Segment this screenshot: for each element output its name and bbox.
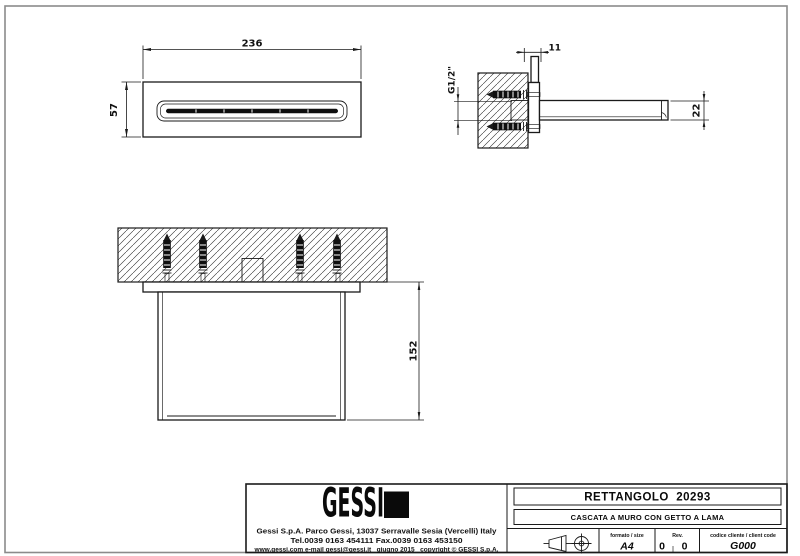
- dim-57-label: 57: [109, 103, 120, 117]
- wall-section-hatched: [118, 228, 387, 282]
- side-view: 11 G1/2" 22: [448, 44, 710, 149]
- dimension-projection-152: 152: [347, 282, 424, 420]
- revision-value-right: 0: [682, 541, 688, 553]
- dim-236-label: 236: [242, 39, 263, 50]
- bottom-view: 152: [118, 228, 424, 420]
- format-label: formato / size: [610, 533, 644, 539]
- product-description: CASCATA A MURO CON GETTO A LAMA: [571, 513, 725, 522]
- front-view: 236 57: [109, 39, 361, 138]
- company-cell: GESSI Gessi S.p.A. Parco Gessi, 13037 Se…: [253, 481, 498, 554]
- title-block: GESSI Gessi S.p.A. Parco Gessi, 13037 Se…: [246, 481, 787, 554]
- dim-g12-label: G1/2": [448, 66, 458, 94]
- dim-152-label: 152: [409, 341, 420, 362]
- company-address: Gessi S.p.A. Parco Gessi, 13037 Serraval…: [257, 529, 497, 536]
- gessi-logo-text: GESSI: [322, 481, 384, 527]
- wall-flange: [529, 83, 540, 133]
- dimension-width-236: 236: [143, 39, 361, 80]
- wall-flange: [143, 282, 360, 292]
- gessi-logo: GESSI: [322, 481, 409, 527]
- client-code-label: codice cliente / client code: [710, 533, 776, 539]
- product-name: RETTANGOLO 20293: [584, 492, 711, 504]
- spout-body: [158, 292, 345, 420]
- format-value: A4: [619, 541, 634, 553]
- revision-value-left: 0: [659, 541, 665, 553]
- client-code-value: G000: [730, 540, 756, 552]
- dimension-spout-height-22: 22: [671, 91, 710, 130]
- flange-upper-profile: [531, 57, 539, 83]
- dim-11-label: 11: [549, 44, 562, 54]
- company-phone: Tel.0039 0163 454111 Fax.0039 0163 45315…: [291, 538, 463, 545]
- wall-section-hatched: [478, 73, 528, 148]
- first-angle-projection-icon: [544, 534, 592, 554]
- drawing-canvas: 236 57: [0, 0, 800, 556]
- gessi-logo-square: [384, 492, 409, 519]
- revision-label: Rev.: [672, 533, 683, 539]
- company-web-copyright: www.gessi.com e-mail gessi@gessi.it giug…: [253, 547, 498, 554]
- technical-drawing-sheet: 236 57: [0, 0, 800, 556]
- dimension-height-57: 57: [109, 82, 141, 137]
- dim-22-label: 22: [692, 104, 703, 118]
